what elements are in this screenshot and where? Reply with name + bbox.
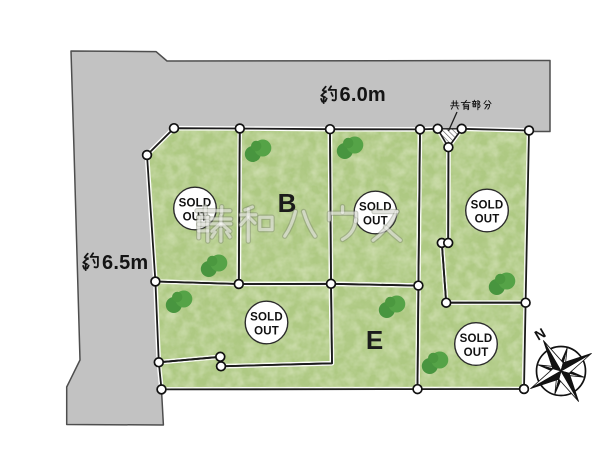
svg-text:E: E [366, 325, 383, 355]
svg-text:SOLD: SOLD [471, 200, 504, 212]
svg-text:6.0m: 6.0m [340, 84, 386, 106]
svg-text:OUT: OUT [254, 326, 279, 338]
svg-text:6.5m: 6.5m [102, 252, 148, 274]
svg-text:SOLD: SOLD [250, 312, 283, 324]
svg-text:OUT: OUT [464, 347, 489, 359]
svg-text:SOLD: SOLD [460, 333, 493, 345]
svg-text:OUT: OUT [475, 214, 500, 226]
